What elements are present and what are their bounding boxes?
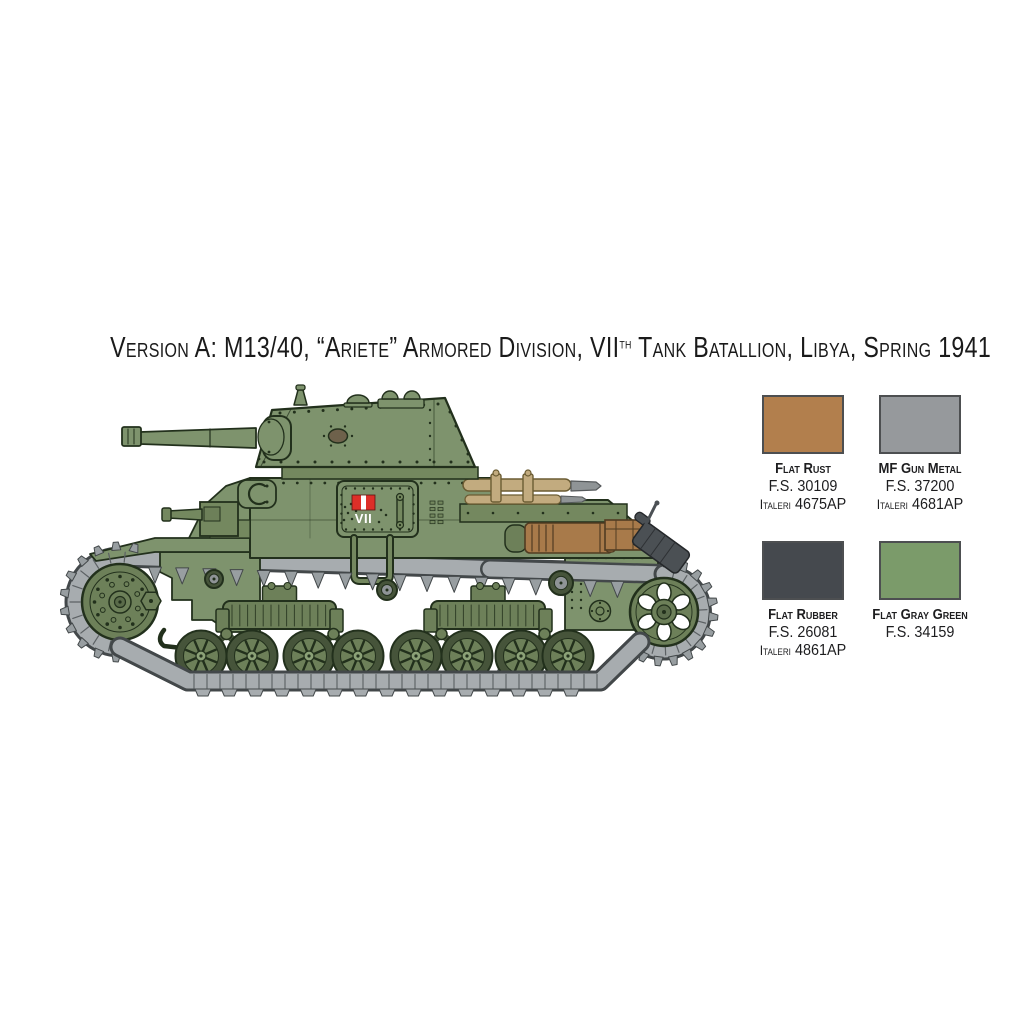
paint-fs-code: F.S. 26081 <box>749 624 857 642</box>
paint-brand-code: Italeri 4861AP <box>749 642 857 660</box>
paint-name: Flat Rust <box>749 461 857 478</box>
paint-brand-code: Italeri 4681AP <box>866 496 974 514</box>
paint-fs-code: F.S. 34159 <box>866 624 974 642</box>
paint-swatch-flat-gray-green: Flat Gray Green F.S. 34159 <box>860 541 980 642</box>
paint-fs-code: F.S. 37200 <box>866 478 974 496</box>
paint-swatch-flat-rubber: Flat Rubber F.S. 26081 Italeri 4861AP <box>743 541 863 660</box>
paint-name: Flat Gray Green <box>866 607 974 624</box>
paint-swatch-mf-gun-metal: MF Gun Metal F.S. 37200 Italeri 4681AP <box>860 395 980 514</box>
paint-chip-flat-gray-green <box>879 541 961 600</box>
brand-name: Italeri <box>760 643 791 658</box>
paint-name: MF Gun Metal <box>866 461 974 478</box>
turret <box>122 385 478 479</box>
tank-illustration: VII <box>60 380 720 700</box>
title-superscript: th <box>619 336 631 353</box>
paint-chip-flat-rust <box>762 395 844 454</box>
paint-chip-mf-gun-metal <box>879 395 961 454</box>
brand-name: Italeri <box>877 497 908 512</box>
brand-product-code: 4681AP <box>912 496 963 513</box>
company-insignia <box>352 495 375 510</box>
paint-brand-code: Italeri 4675AP <box>749 496 857 514</box>
tank-marking-numeral: VII <box>355 511 372 526</box>
paint-name: Flat Rubber <box>749 607 857 624</box>
paint-chip-flat-rubber <box>762 541 844 600</box>
paint-fs-code: F.S. 30109 <box>749 478 857 496</box>
brand-product-code: 4675AP <box>795 496 846 513</box>
page-title: Version A: M13/40, “Ariete” Armored Divi… <box>0 332 1024 365</box>
paint-swatch-flat-rust: Flat Rust F.S. 30109 Italeri 4675AP <box>743 395 863 514</box>
paint-label: Flat Gray Green F.S. 34159 <box>866 607 974 642</box>
paint-label: Flat Rubber F.S. 26081 Italeri 4861AP <box>749 607 857 660</box>
brand-name: Italeri <box>760 497 791 512</box>
title-part1: Version A: M13/40, “Ariete” Armored Divi… <box>110 332 619 364</box>
title-part2: Tank Batallion, Libya, Spring 1941 <box>632 332 991 364</box>
paint-label: MF Gun Metal F.S. 37200 Italeri 4681AP <box>866 461 974 514</box>
page-title-text: Version A: M13/40, “Ariete” Armored Divi… <box>110 332 991 365</box>
brand-product-code: 4861AP <box>795 642 846 659</box>
paint-label: Flat Rust F.S. 30109 Italeri 4675AP <box>749 461 857 514</box>
instruction-page: Version A: M13/40, “Ariete” Armored Divi… <box>0 0 1024 1024</box>
